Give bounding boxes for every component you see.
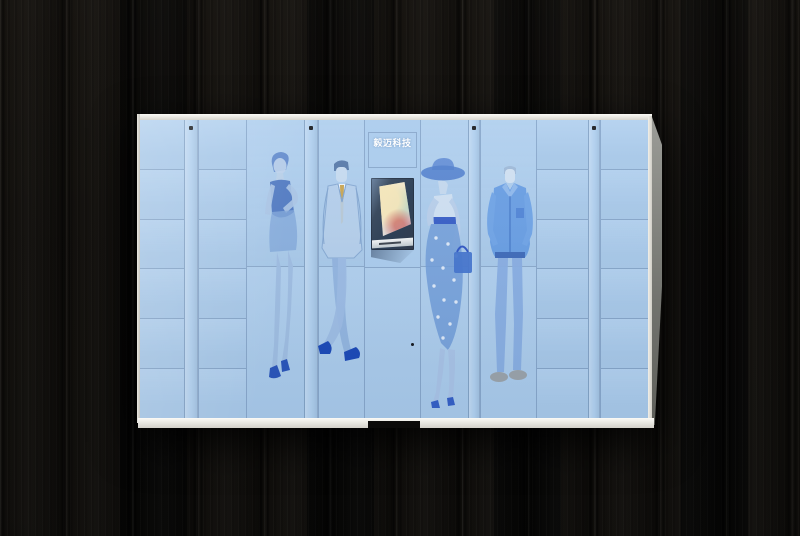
locker-door[interactable] — [537, 169, 588, 219]
locker-columns: 毅迈科技 — [140, 120, 648, 418]
locker-door[interactable] — [537, 318, 588, 368]
locker-door[interactable] — [601, 120, 648, 169]
pillar-screw-dot — [189, 126, 193, 130]
locker-front-panel: 毅迈科技 — [140, 120, 648, 418]
locker-frame-top — [137, 114, 652, 120]
locker-side-panel — [652, 117, 662, 425]
locker-door[interactable] — [199, 169, 246, 219]
column-pillar-1 — [184, 120, 198, 418]
locker-door[interactable] — [601, 368, 648, 418]
column-lockers-right-1 — [536, 120, 588, 418]
locker-door[interactable] — [199, 120, 246, 169]
cabinet-door-top[interactable] — [421, 120, 468, 267]
locker-door[interactable] — [601, 268, 648, 318]
column-door-man-casual — [480, 120, 536, 418]
column-lockers-right-2 — [600, 120, 648, 418]
kiosk-kick-recess — [368, 421, 420, 428]
locker-door[interactable] — [601, 318, 648, 368]
locker-frame-right — [648, 116, 652, 423]
recess-shadow — [371, 250, 414, 263]
locker-door[interactable] — [199, 368, 246, 418]
locker-door[interactable] — [601, 219, 648, 269]
kiosk-lower-door[interactable] — [365, 268, 420, 418]
cabinet-door-top[interactable] — [319, 120, 364, 267]
locker-door[interactable] — [140, 169, 184, 219]
pillar-screw-dot — [309, 126, 313, 130]
column-door-man-suit — [318, 120, 364, 418]
cabinet-door-bottom[interactable] — [319, 267, 364, 418]
locker-door[interactable] — [537, 368, 588, 418]
column-door-woman-hat — [420, 120, 468, 418]
locker-door[interactable] — [537, 268, 588, 318]
locker-door[interactable] — [537, 219, 588, 269]
column-kiosk: 毅迈科技 — [364, 120, 420, 418]
lock-indicator-dot — [411, 343, 414, 346]
cabinet-door-bottom[interactable] — [421, 267, 468, 418]
locker-door[interactable] — [601, 169, 648, 219]
kiosk-screen[interactable] — [375, 182, 411, 239]
locker-door[interactable] — [537, 120, 588, 169]
parcel-locker: 毅迈科技 — [137, 114, 659, 430]
locker-door[interactable] — [140, 120, 184, 169]
column-pillar-3 — [468, 120, 480, 418]
locker-door[interactable] — [140, 219, 184, 269]
locker-door[interactable] — [199, 268, 246, 318]
cabinet-door-bottom[interactable] — [247, 267, 304, 418]
pillar-screw-dot — [592, 126, 596, 130]
cabinet-door-top[interactable] — [247, 120, 304, 267]
locker-door[interactable] — [140, 268, 184, 318]
column-lockers-left-2 — [198, 120, 246, 418]
wood-plank-wall: 毅迈科技 — [0, 0, 800, 536]
locker-frame-left — [137, 114, 140, 423]
locker-base — [138, 418, 654, 428]
locker-door[interactable] — [199, 219, 246, 269]
cabinet-door-bottom[interactable] — [481, 267, 536, 418]
pillar-screw-dot — [472, 126, 476, 130]
locker-door[interactable] — [199, 318, 246, 368]
column-pillar-2 — [304, 120, 318, 418]
locker-door[interactable] — [140, 368, 184, 418]
column-pillar-4 — [588, 120, 600, 418]
kiosk-screen-recess — [371, 178, 414, 250]
brand-label: 毅迈科技 — [373, 138, 411, 148]
brand-sign: 毅迈科技 — [368, 132, 417, 168]
locker-door[interactable] — [140, 318, 184, 368]
kiosk-keypad-tray[interactable] — [372, 238, 413, 249]
column-door-woman-dress — [246, 120, 304, 418]
cabinet-door-top[interactable] — [481, 120, 536, 267]
column-lockers-left-1 — [140, 120, 184, 418]
